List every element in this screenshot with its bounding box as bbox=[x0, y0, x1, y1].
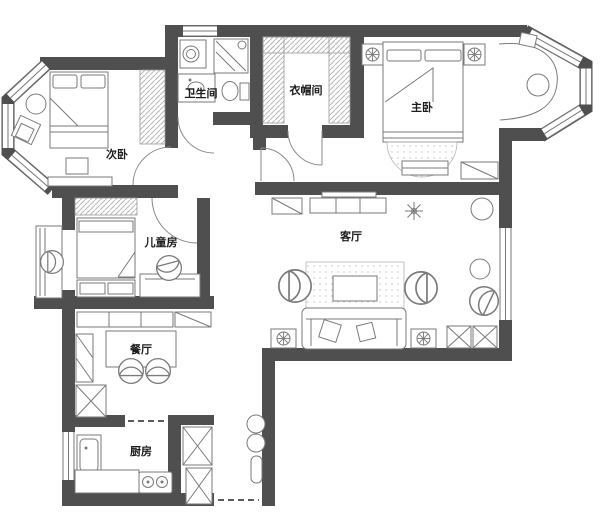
wardrobe bbox=[329, 37, 350, 123]
window bbox=[541, 106, 584, 139]
table-lamp-icon bbox=[468, 48, 481, 61]
cloakroom-wardrobes bbox=[263, 37, 350, 123]
wall-segment bbox=[322, 125, 364, 138]
window bbox=[8, 151, 51, 191]
duct-shaft bbox=[183, 427, 212, 504]
fridge bbox=[76, 385, 106, 417]
sink-icon bbox=[77, 435, 101, 475]
dining-room-furniture bbox=[76, 312, 211, 417]
decor-circle bbox=[247, 415, 265, 433]
counter bbox=[75, 470, 139, 493]
window bbox=[62, 432, 75, 480]
room-label-bathroom: 卫生间 bbox=[185, 86, 218, 100]
room-label-kids-room: 儿童房 bbox=[144, 235, 178, 249]
floor-plan-canvas: 次卧 卫生间 衣帽间 主卧 儿童房 客厅 餐厅 厨房 bbox=[0, 0, 600, 512]
decor-circle bbox=[247, 434, 265, 452]
side-table bbox=[271, 329, 296, 348]
floor-plan: 次卧 卫生间 衣帽间 主卧 儿童房 客厅 餐厅 厨房 bbox=[0, 0, 600, 512]
wall-segment bbox=[40, 57, 170, 70]
round-side-table bbox=[26, 94, 46, 114]
side-table bbox=[411, 329, 436, 348]
bed bbox=[50, 72, 108, 148]
nightstand bbox=[66, 158, 88, 174]
door-arc bbox=[288, 131, 322, 165]
master-bedroom-furniture bbox=[362, 32, 557, 179]
wardrobe bbox=[75, 198, 137, 215]
tv-cabinet bbox=[272, 192, 386, 214]
tall-cabinet bbox=[76, 334, 93, 382]
wall-segment bbox=[250, 25, 263, 125]
bed bbox=[383, 42, 463, 142]
room-label-living-room: 客厅 bbox=[339, 229, 362, 243]
toilet-icon bbox=[222, 82, 249, 101]
plant-icon bbox=[405, 202, 423, 220]
cabinet bbox=[461, 162, 498, 179]
wall-segment bbox=[350, 25, 364, 138]
wardrobe bbox=[263, 37, 284, 123]
armchair bbox=[279, 270, 311, 302]
round-table bbox=[470, 259, 490, 279]
armchair bbox=[41, 251, 64, 274]
coffee-table bbox=[333, 276, 377, 301]
window bbox=[3, 104, 14, 148]
bed-bench bbox=[402, 161, 448, 175]
wall-segment bbox=[262, 356, 275, 506]
armchair bbox=[465, 282, 503, 320]
cabinet bbox=[175, 312, 211, 327]
wall-segment bbox=[499, 128, 545, 141]
room-label-secondary-bedroom: 次卧 bbox=[106, 147, 128, 161]
wall-segment bbox=[350, 25, 527, 37]
wall-segment bbox=[181, 415, 214, 425]
door-arc bbox=[178, 117, 214, 153]
window bbox=[7, 61, 50, 102]
nightstand bbox=[464, 44, 485, 65]
window bbox=[581, 69, 592, 105]
bay-box bbox=[519, 32, 537, 47]
table-lamp-icon bbox=[366, 48, 379, 61]
sideboard bbox=[77, 312, 173, 327]
tv bbox=[322, 192, 376, 197]
round-table bbox=[471, 198, 493, 220]
table-lamp-icon bbox=[417, 332, 430, 345]
low-cabinet bbox=[48, 177, 112, 186]
living-room-furniture bbox=[271, 192, 503, 349]
dining-chair bbox=[119, 359, 144, 384]
wall-segment bbox=[262, 348, 512, 361]
dining-chair bbox=[146, 359, 171, 384]
room-label-kitchen: 厨房 bbox=[130, 444, 152, 458]
bed bbox=[77, 218, 135, 278]
room-label-master-bedroom: 主卧 bbox=[411, 100, 433, 114]
shoe-cabinet bbox=[447, 326, 497, 348]
washer-icon bbox=[180, 40, 206, 68]
shower bbox=[214, 39, 248, 73]
door-arc bbox=[133, 147, 171, 185]
wall-segment bbox=[250, 125, 288, 138]
kitchen-fixtures bbox=[75, 427, 212, 504]
wall-segment bbox=[255, 182, 512, 195]
armchair bbox=[405, 272, 437, 304]
stool bbox=[527, 74, 549, 96]
room-label-cloakroom: 衣帽间 bbox=[290, 83, 323, 97]
sofa bbox=[302, 308, 406, 349]
window bbox=[183, 26, 217, 36]
wall-segment bbox=[499, 318, 512, 361]
wall-segment bbox=[213, 112, 253, 125]
stove-icon bbox=[139, 472, 172, 493]
wardrobe bbox=[140, 70, 165, 144]
door-arc bbox=[261, 148, 294, 181]
wall-segment bbox=[62, 185, 75, 230]
armchair bbox=[11, 115, 40, 144]
wall-segment bbox=[165, 25, 178, 148]
dresser bbox=[77, 280, 135, 297]
room-label-dining-room: 餐厅 bbox=[129, 342, 152, 356]
nightstand bbox=[362, 44, 383, 65]
radiator bbox=[251, 456, 262, 483]
window bbox=[499, 228, 512, 320]
table-lamp-icon bbox=[277, 332, 290, 345]
window-seat-bay bbox=[36, 226, 63, 298]
